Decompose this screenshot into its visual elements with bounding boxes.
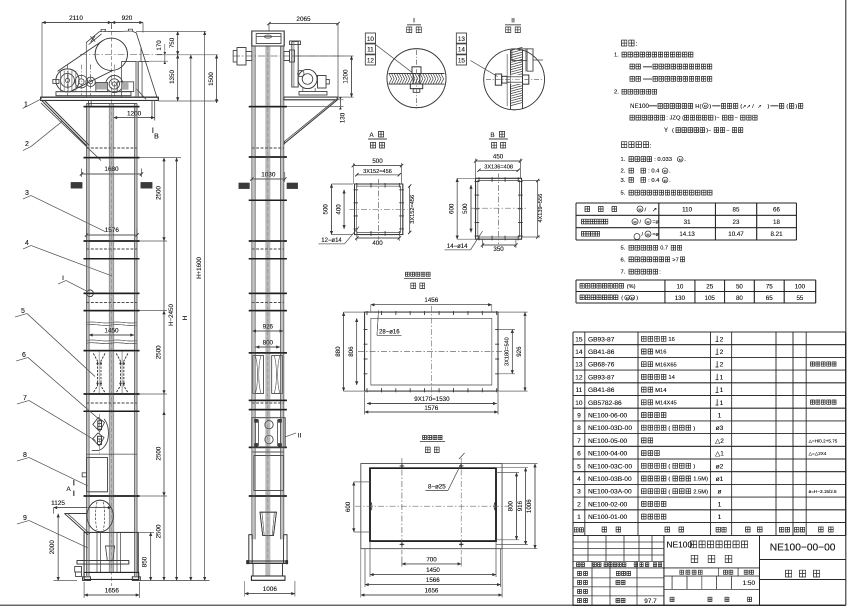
svg-text:NE100: NE100 xyxy=(667,540,693,550)
svg-text:NE100: NE100 xyxy=(630,103,649,110)
svg-text:−: − xyxy=(735,116,738,122)
svg-text:↗: ↗ xyxy=(757,104,761,110)
svg-text:3: 3 xyxy=(25,190,29,197)
svg-text:800: 800 xyxy=(263,339,274,346)
svg-text:△=△2X4: △=△2X4 xyxy=(809,451,827,456)
svg-text:2: 2 xyxy=(577,501,581,508)
svg-text:100: 100 xyxy=(795,283,806,290)
svg-text:): ) xyxy=(795,104,797,110)
svg-text:H−2450: H−2450 xyxy=(168,304,175,326)
svg-text:28−ø16: 28−ø16 xyxy=(379,330,400,336)
svg-text:1: 1 xyxy=(720,400,724,407)
svg-text:1656: 1656 xyxy=(105,587,120,594)
svg-text:M: M xyxy=(647,233,650,237)
svg-text:1006: 1006 xyxy=(263,586,278,593)
svg-text:1: 1 xyxy=(718,413,722,420)
svg-text:800: 800 xyxy=(508,500,515,511)
svg-text:1: 1 xyxy=(577,514,581,521)
svg-text:2: 2 xyxy=(720,362,724,369)
svg-text:2: 2 xyxy=(720,349,724,356)
svg-text:M: M xyxy=(626,296,629,300)
svg-text:GB41-86: GB41-86 xyxy=(588,387,615,394)
svg-text:0.7: 0.7 xyxy=(660,246,668,252)
svg-text:1450: 1450 xyxy=(426,567,440,574)
svg-text:350: 350 xyxy=(493,246,504,253)
svg-text:1656: 1656 xyxy=(425,588,439,595)
svg-text:1: 1 xyxy=(718,514,722,521)
svg-text:M: M xyxy=(704,105,707,109)
svg-text:10: 10 xyxy=(575,400,583,407)
svg-text:NE100-03D-00: NE100-03D-00 xyxy=(588,425,632,432)
svg-text:A: A xyxy=(369,132,374,139)
svg-text:1.5M): 1.5M) xyxy=(693,477,708,483)
svg-text:1576: 1576 xyxy=(424,405,438,412)
svg-text:=ø: =ø xyxy=(653,220,660,226)
svg-text:97.7: 97.7 xyxy=(644,598,657,605)
svg-text:(: ( xyxy=(621,295,623,301)
svg-text:M: M xyxy=(664,170,667,174)
svg-text:8.21: 8.21 xyxy=(770,231,783,238)
svg-text:NE100-05-00: NE100-05-00 xyxy=(588,438,628,445)
svg-text:GB93-87: GB93-87 xyxy=(588,336,615,343)
svg-text:3X136=408: 3X136=408 xyxy=(484,164,513,170)
svg-text:2.: 2. xyxy=(621,169,626,175)
svg-text:1350: 1350 xyxy=(169,70,176,84)
svg-text:25: 25 xyxy=(706,283,713,290)
svg-text:2.5M): 2.5M) xyxy=(693,489,708,495)
svg-text:II: II xyxy=(298,433,302,440)
svg-text:400: 400 xyxy=(372,240,383,247)
svg-text:1200: 1200 xyxy=(342,69,349,84)
svg-text:ø=H−3.15/2.5: ø=H−3.15/2.5 xyxy=(809,489,838,494)
svg-text:): ) xyxy=(767,104,769,110)
svg-text:170: 170 xyxy=(156,40,163,51)
svg-text:1680: 1680 xyxy=(104,166,119,173)
svg-text:M16: M16 xyxy=(655,350,666,356)
svg-text:926: 926 xyxy=(263,324,274,331)
svg-text:): ) xyxy=(636,295,638,301)
svg-text:(: ( xyxy=(668,464,670,470)
svg-text:3X152=456: 3X152=456 xyxy=(410,195,416,224)
svg-text:8: 8 xyxy=(577,425,581,432)
svg-text:10.47: 10.47 xyxy=(728,231,744,238)
svg-text:6.: 6. xyxy=(621,257,626,263)
svg-text:ø1: ø1 xyxy=(716,476,724,483)
svg-text:926: 926 xyxy=(516,346,523,357)
svg-text:1125: 1125 xyxy=(51,500,65,507)
svg-text:NE100-06-00: NE100-06-00 xyxy=(588,413,628,420)
svg-text:850: 850 xyxy=(142,556,149,567)
svg-text:1:50: 1:50 xyxy=(743,580,756,587)
svg-text:)−: )− xyxy=(706,128,711,134)
svg-text:50: 50 xyxy=(736,283,743,290)
svg-text:8−ø25: 8−ø25 xyxy=(428,484,446,491)
svg-text:10: 10 xyxy=(676,283,683,290)
svg-text:600: 600 xyxy=(345,501,352,512)
svg-text:1576: 1576 xyxy=(105,227,120,234)
svg-text:: JZQ (: : JZQ ( xyxy=(666,116,684,122)
svg-text:M: M xyxy=(679,158,682,162)
svg-text:55: 55 xyxy=(796,295,803,302)
svg-text:806: 806 xyxy=(348,346,355,357)
svg-text:GB68-76: GB68-76 xyxy=(588,362,615,369)
svg-text:13: 13 xyxy=(575,362,583,369)
svg-text:5.: 5. xyxy=(621,246,626,252)
svg-text:I: I xyxy=(62,275,64,282)
svg-text:H: H xyxy=(182,316,189,320)
svg-text:3.: 3. xyxy=(621,178,626,184)
svg-text:△2: △2 xyxy=(715,438,724,445)
svg-text:(%): (%) xyxy=(627,284,636,290)
svg-text:GB5782-86: GB5782-86 xyxy=(588,400,622,407)
svg-text:(: ( xyxy=(786,104,788,110)
svg-text:3: 3 xyxy=(577,489,581,496)
svg-text:12: 12 xyxy=(367,58,375,65)
svg-text:(↗↗ /: (↗↗ / xyxy=(740,104,754,110)
svg-text:2500: 2500 xyxy=(155,186,162,200)
svg-text:500: 500 xyxy=(372,158,383,165)
svg-text:B: B xyxy=(154,134,159,141)
svg-text:13: 13 xyxy=(458,36,466,43)
svg-text:1: 1 xyxy=(720,374,724,381)
svg-text:1456: 1456 xyxy=(424,297,438,304)
svg-text:ø2: ø2 xyxy=(716,463,724,470)
svg-text:5: 5 xyxy=(577,463,581,470)
svg-text:1030: 1030 xyxy=(261,171,276,178)
svg-text:11: 11 xyxy=(367,47,374,54)
svg-text:GB41-86: GB41-86 xyxy=(588,349,615,356)
svg-text:2110: 2110 xyxy=(69,15,83,22)
svg-text:11: 11 xyxy=(575,387,582,394)
svg-text:NE100-01-00: NE100-01-00 xyxy=(588,514,628,521)
svg-text:NE100-03A-00: NE100-03A-00 xyxy=(588,489,632,496)
svg-text:500: 500 xyxy=(462,203,469,214)
svg-text:916: 916 xyxy=(517,500,524,511)
svg-text:105: 105 xyxy=(705,295,716,302)
svg-text:(: ( xyxy=(668,489,670,495)
svg-text:Y: Y xyxy=(664,128,668,134)
svg-text:1.: 1. xyxy=(621,157,626,163)
svg-text:700: 700 xyxy=(426,556,437,563)
svg-text:NE100−00−00: NE100−00−00 xyxy=(770,543,836,554)
svg-text:=ø: =ø xyxy=(653,232,660,238)
svg-text:(: ( xyxy=(668,477,670,483)
svg-text:4X139=556: 4X139=556 xyxy=(538,194,544,223)
svg-text:M14: M14 xyxy=(655,388,667,394)
svg-text:5.: 5. xyxy=(621,191,626,197)
svg-text:M: M xyxy=(639,208,642,212)
svg-text:−: − xyxy=(726,128,729,134)
svg-text:85: 85 xyxy=(733,207,740,214)
svg-text:GB93-87: GB93-87 xyxy=(588,374,615,381)
svg-text:2065: 2065 xyxy=(296,16,311,23)
svg-text:10: 10 xyxy=(367,36,375,43)
svg-text:65: 65 xyxy=(766,295,773,302)
svg-text:1: 1 xyxy=(718,501,722,508)
svg-text:12−ø14: 12−ø14 xyxy=(321,238,342,244)
svg-text:66: 66 xyxy=(773,207,780,214)
svg-text:2000: 2000 xyxy=(49,540,56,555)
svg-text:1.: 1. xyxy=(614,53,619,59)
svg-text:M: M xyxy=(631,296,634,300)
svg-text:1450: 1450 xyxy=(104,327,119,334)
svg-text:(: ( xyxy=(668,426,670,432)
svg-text:23: 23 xyxy=(733,219,740,226)
svg-text:NE100-03B-00: NE100-03B-00 xyxy=(588,476,632,483)
svg-text:2: 2 xyxy=(25,141,29,148)
svg-text:): ) xyxy=(709,104,711,110)
svg-text:2.: 2. xyxy=(614,90,619,96)
svg-text:): ) xyxy=(693,464,695,470)
svg-text:110: 110 xyxy=(682,207,692,214)
svg-text:130: 130 xyxy=(675,295,686,302)
svg-text:9: 9 xyxy=(577,413,581,420)
svg-text:14−ø14: 14−ø14 xyxy=(447,244,468,250)
svg-text::: : xyxy=(650,143,652,150)
svg-text:4: 4 xyxy=(577,476,581,483)
svg-text:NE100-03C-00: NE100-03C-00 xyxy=(588,463,632,470)
svg-text:M: M xyxy=(647,220,650,224)
svg-text:7: 7 xyxy=(577,438,581,445)
svg-text:7.: 7. xyxy=(621,270,626,276)
svg-text:2500: 2500 xyxy=(155,345,162,359)
svg-text:14: 14 xyxy=(575,349,583,356)
svg-text:9X170=1530: 9X170=1530 xyxy=(414,396,450,403)
svg-text:M16X65: M16X65 xyxy=(655,362,677,368)
svg-text:H(: H( xyxy=(695,104,701,110)
svg-text:2500: 2500 xyxy=(155,446,162,460)
svg-text:600: 600 xyxy=(448,203,455,214)
svg-text:: 0.4: : 0.4 xyxy=(648,178,660,184)
svg-text:75: 75 xyxy=(766,283,773,290)
svg-text:I: I xyxy=(413,18,415,25)
svg-text:↗: ↗ xyxy=(652,207,657,213)
svg-text:14: 14 xyxy=(458,47,466,54)
svg-text:M: M xyxy=(664,179,667,183)
svg-text:: 0.4: : 0.4 xyxy=(648,169,660,175)
svg-text:ø: ø xyxy=(717,489,721,496)
svg-text:: 0.033: : 0.033 xyxy=(654,157,672,163)
svg-text:400: 400 xyxy=(335,204,342,215)
svg-text:H+1600: H+1600 xyxy=(196,257,203,279)
svg-text:6: 6 xyxy=(577,451,581,458)
svg-text:14: 14 xyxy=(668,375,675,381)
svg-text:750: 750 xyxy=(169,37,176,48)
svg-text:14.13: 14.13 xyxy=(679,231,695,238)
svg-text:15: 15 xyxy=(575,336,583,343)
svg-text:II: II xyxy=(511,18,515,25)
svg-text:16: 16 xyxy=(668,337,674,343)
svg-text:3X180=540: 3X180=540 xyxy=(504,337,510,366)
svg-text:ø3: ø3 xyxy=(716,425,724,432)
svg-text:): ) xyxy=(693,426,695,432)
svg-text:M: M xyxy=(634,220,637,224)
svg-text:NE100-02-00: NE100-02-00 xyxy=(588,501,628,508)
svg-text:)−: )− xyxy=(715,116,720,122)
svg-text:31: 31 xyxy=(684,219,691,226)
svg-text:2: 2 xyxy=(720,336,724,343)
svg-text:1500: 1500 xyxy=(208,72,215,86)
svg-text:1200: 1200 xyxy=(127,110,142,117)
svg-text:18: 18 xyxy=(773,219,780,226)
svg-text::: : xyxy=(636,41,638,48)
svg-text:NE100-04-00: NE100-04-00 xyxy=(588,451,628,458)
svg-text:3X152=456: 3X152=456 xyxy=(363,169,392,175)
svg-text:1566: 1566 xyxy=(426,577,440,584)
svg-text:4: 4 xyxy=(25,240,29,247)
svg-text:500: 500 xyxy=(323,204,330,215)
svg-text:1: 1 xyxy=(720,387,724,394)
svg-text:(: ( xyxy=(672,128,674,134)
svg-text:15: 15 xyxy=(458,58,466,65)
svg-text:B: B xyxy=(490,132,494,139)
svg-text:920: 920 xyxy=(122,15,133,22)
svg-text:>7: >7 xyxy=(672,257,678,263)
svg-text:2500: 2500 xyxy=(155,524,162,538)
svg-text:12: 12 xyxy=(575,374,583,381)
svg-text:880: 880 xyxy=(335,346,342,357)
svg-text:A: A xyxy=(66,486,71,493)
svg-text:80: 80 xyxy=(736,295,743,302)
svg-text:1006: 1006 xyxy=(526,499,533,513)
svg-text:130: 130 xyxy=(340,112,347,123)
svg-text:450: 450 xyxy=(493,154,504,161)
svg-text:M14X45: M14X45 xyxy=(655,401,677,407)
svg-text:△1: △1 xyxy=(715,451,724,458)
svg-text:△=H/0.2+5.75: △=H/0.2+5.75 xyxy=(809,438,838,443)
